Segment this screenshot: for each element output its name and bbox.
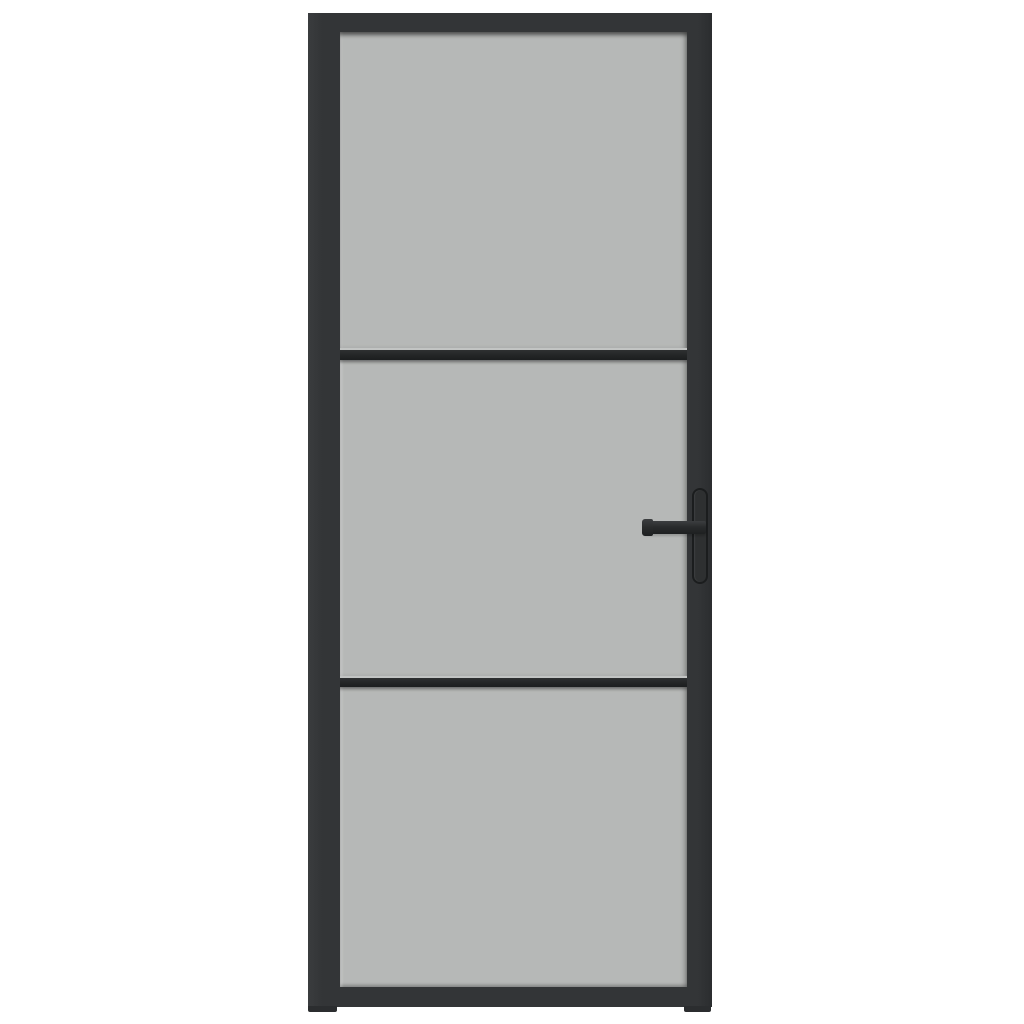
door <box>308 13 712 1007</box>
glazing-bar-lower <box>340 676 687 687</box>
handle-backplate <box>692 488 708 584</box>
door-foot-left <box>308 1006 337 1012</box>
door-glazing <box>340 32 687 987</box>
glass-panel-top <box>340 32 687 348</box>
glass-panel-bottom <box>340 687 687 987</box>
glass-panel-middle <box>340 360 687 676</box>
photo-background <box>0 0 1024 1024</box>
glazing-bar-upper <box>340 348 687 360</box>
door-foot-right <box>684 1006 711 1012</box>
